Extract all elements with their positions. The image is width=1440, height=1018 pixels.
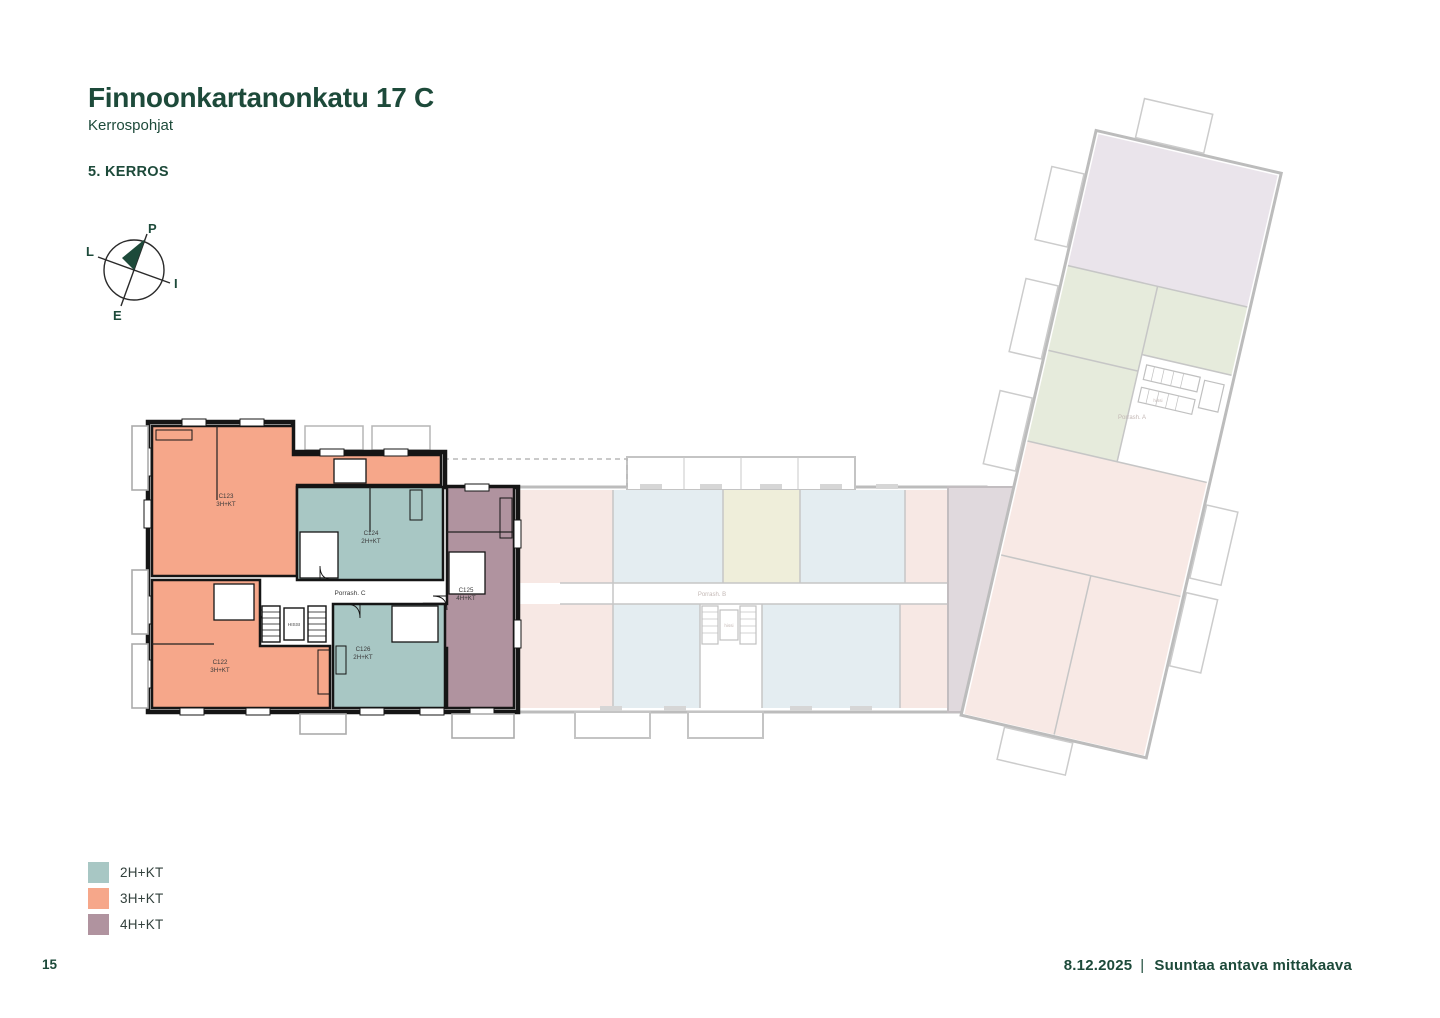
apartment-c122-id: C122 [213,659,228,666]
apartment-c124-id: C124 [364,530,379,537]
faded-a-wing [919,82,1324,800]
stairwell-c-label: Porrash. C [334,590,365,597]
faded-apartment [519,604,613,708]
faded-apartment [900,604,950,708]
faded-bottom-balcony [688,712,763,738]
legend-item-3hkt: 3H+KT [88,888,163,909]
floor-plan: Porrash. B hissi [0,0,1440,1018]
apartment-c122-type: 3H+KT [210,667,230,674]
faded-apartment [613,604,700,708]
legend-swatch-4hkt [88,914,109,935]
faded-apartment [762,604,900,708]
apartment-c125-id: C125 [459,587,474,594]
stairwell-b-label: Porrash. B [698,592,726,598]
dashed-balcony-zone [445,459,627,487]
faded-apartment [613,490,723,583]
faded-apartment [723,490,800,583]
stairwell-a-label: Porrash. A [1118,415,1146,421]
faded-apartment [800,490,905,583]
balcony-boxes-top [305,426,430,450]
legend-item-4hkt: 4H+KT [88,914,163,935]
footer-scale-note: Suuntaa antava mittakaava [1154,957,1352,974]
apartment-c126-type: 2H+KT [353,654,373,661]
legend-label-2hkt: 2H+KT [120,865,163,880]
faded-apartment [519,490,613,583]
legend-item-2hkt: 2H+KT [88,862,163,883]
faded-apartment [905,490,950,583]
footer-separator: | [1140,957,1144,974]
legend: 2H+KT 3H+KT 4H+KT [88,862,163,940]
legend-label-4hkt: 4H+KT [120,917,163,932]
footer-note: 8.12.2025|Suuntaa antava mittakaava [1060,957,1352,974]
apartment-c125-type: 4H+KT [456,595,476,602]
page: Finnoonkartanonkatu 17 C Kerrospohjat 5.… [0,0,1440,1018]
apartment-c124-type: 2H+KT [361,538,381,545]
elevator-c-label: HISSI [288,622,301,628]
apartment-c126-id: C126 [356,646,371,653]
legend-label-3hkt: 3H+KT [120,891,163,906]
elevator-a-label: hissi [1153,398,1162,403]
elevator-b-label: hissi [724,623,733,628]
legend-swatch-2hkt [88,862,109,883]
apartment-c123-id: C123 [219,493,234,500]
footer-date: 8.12.2025 [1064,957,1133,974]
page-number: 15 [42,957,57,972]
faded-middle-wing: Porrash. B hissi [516,457,1015,738]
legend-swatch-3hkt [88,888,109,909]
apartment-c123-type: 3H+KT [216,501,236,508]
faded-bottom-balcony [575,712,650,738]
